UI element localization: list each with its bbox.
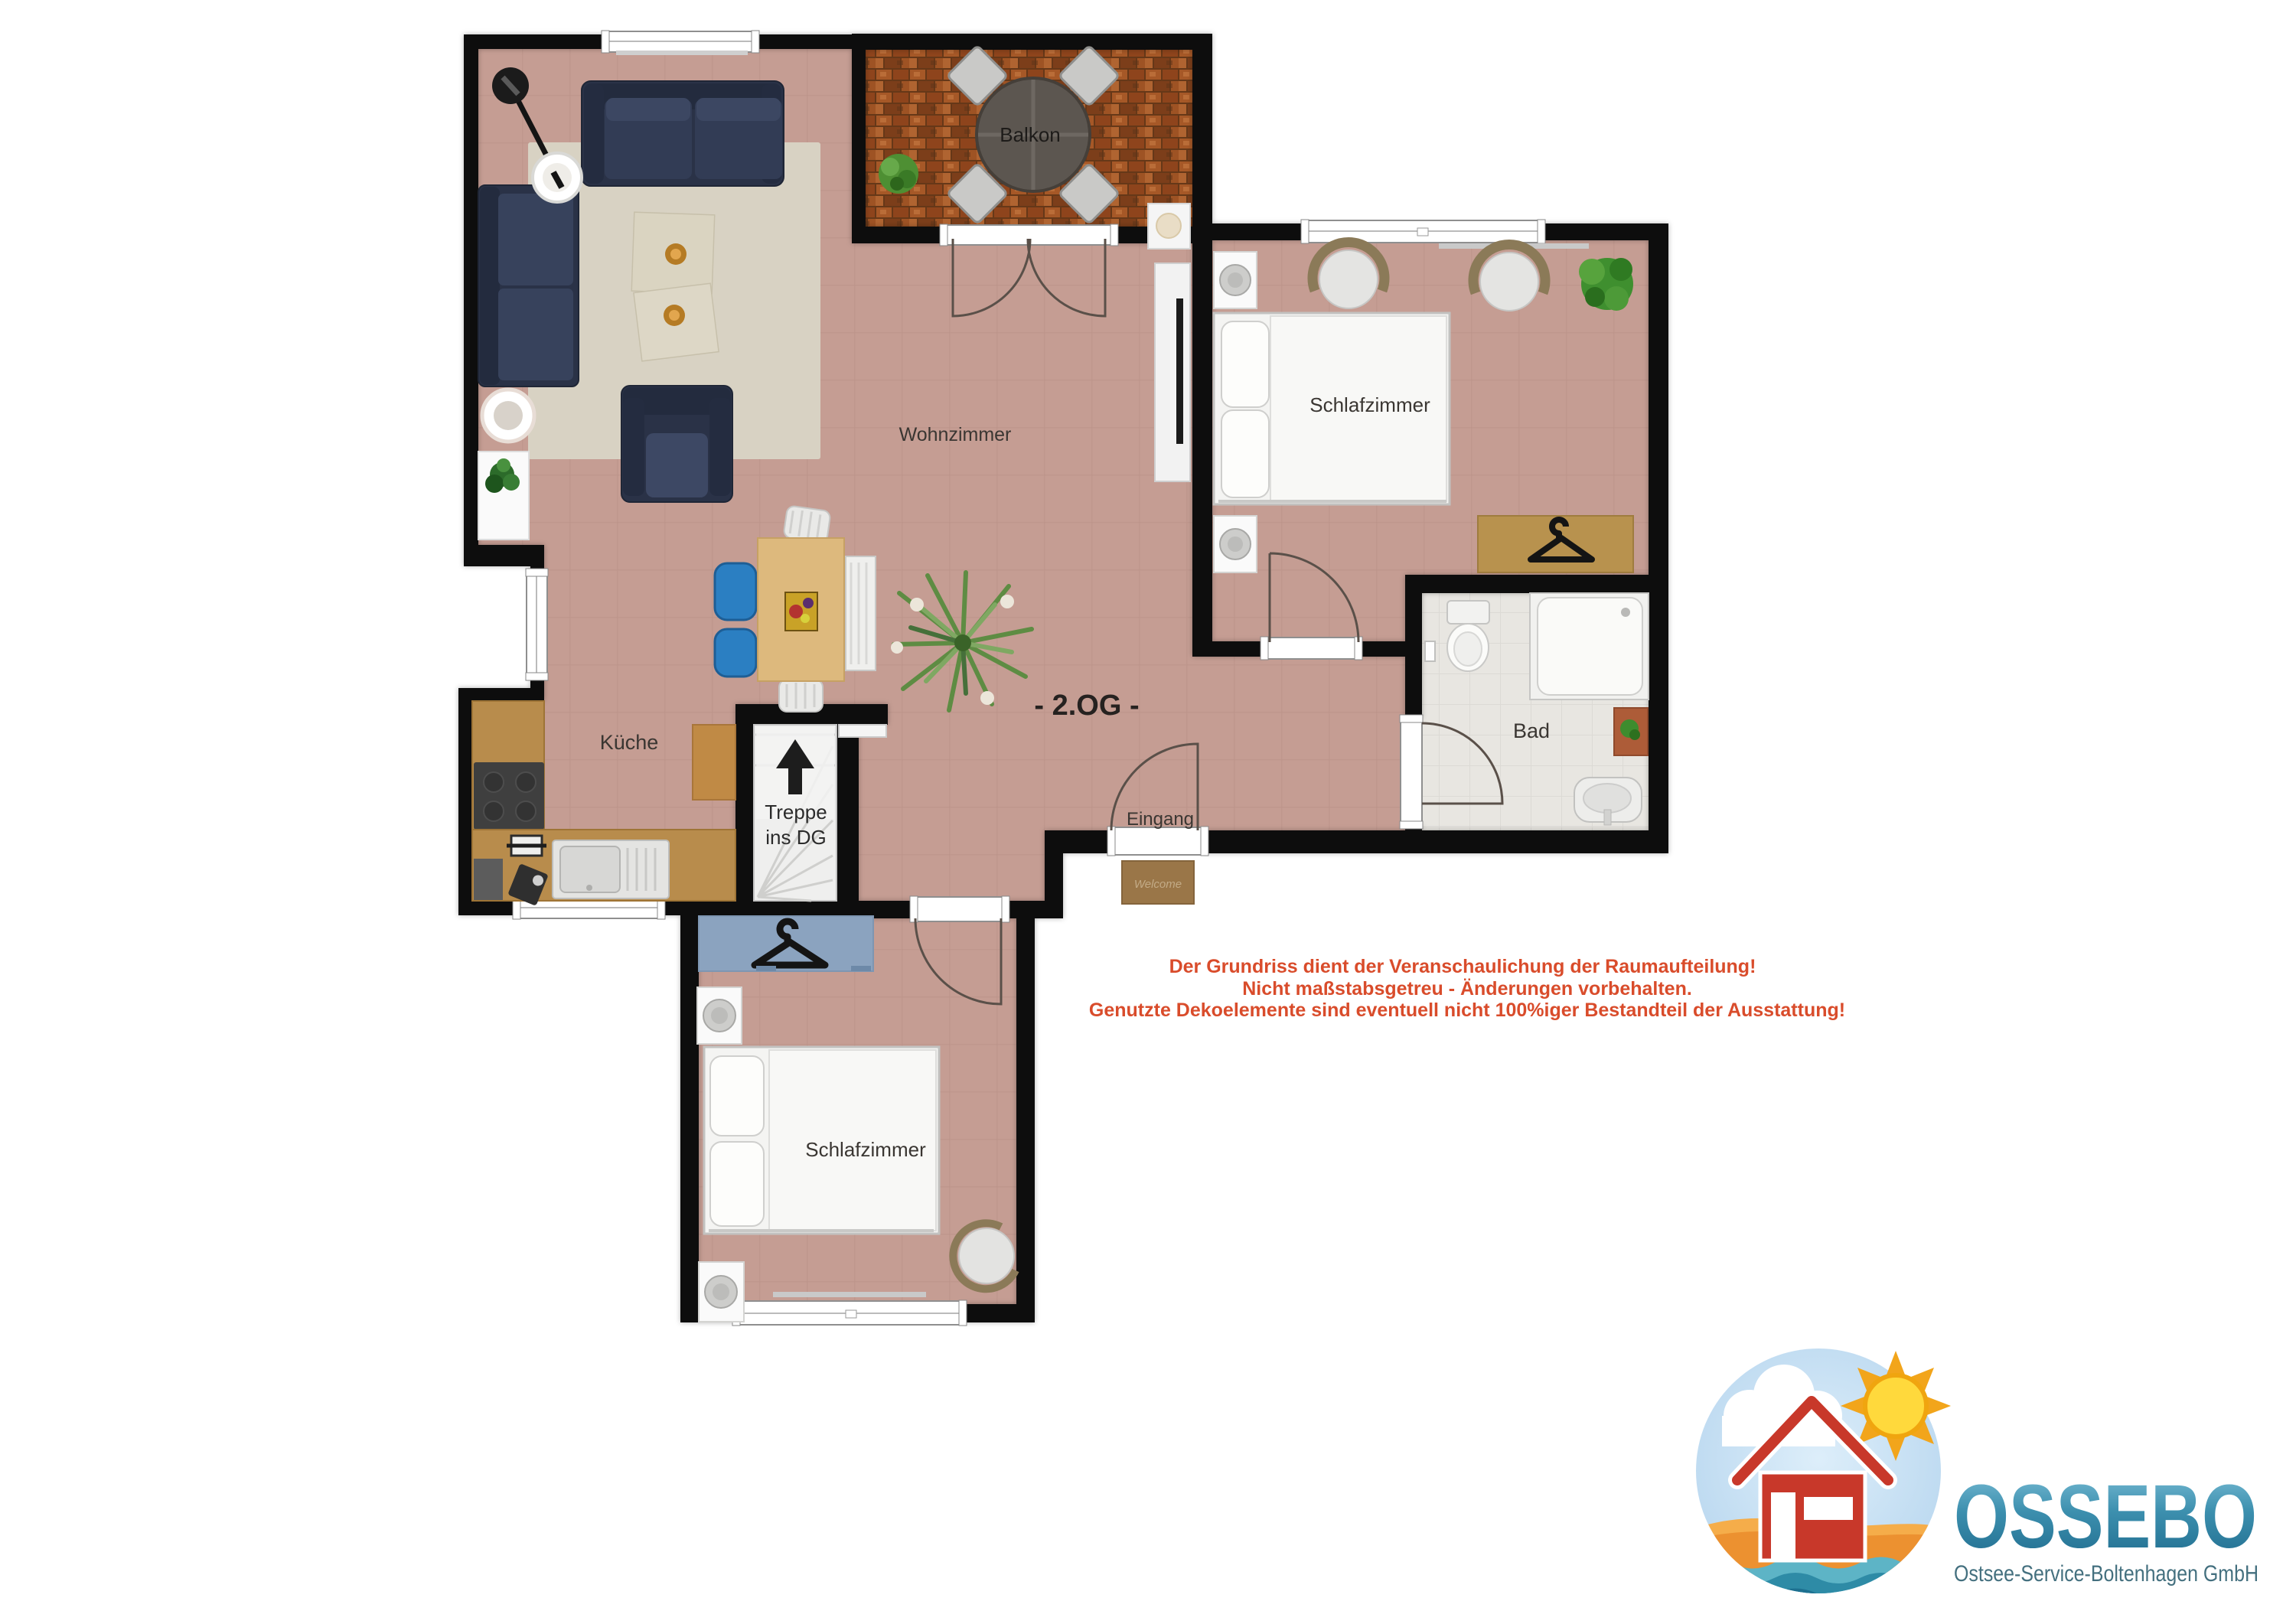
svg-text:ins DG: ins DG [765, 826, 826, 849]
svg-text:Schlafzimmer: Schlafzimmer [1309, 393, 1430, 416]
svg-text:Genutzte Dekoelemente sind eve: Genutzte Dekoelemente sind eventuell nic… [1089, 1000, 1845, 1021]
svg-text:Der Grundriss dient der Verans: Der Grundriss dient der Veranschaulichun… [1169, 956, 1756, 977]
svg-text:Eingang: Eingang [1127, 809, 1194, 830]
svg-text:Treppe: Treppe [765, 801, 827, 823]
svg-text:Wohnzimmer: Wohnzimmer [899, 424, 1012, 445]
svg-text:Balkon: Balkon [1000, 123, 1061, 146]
svg-text:OSSEBO: OSSEBO [1954, 1466, 2257, 1567]
svg-text:Nicht maßstabsgetreu - Änderun: Nicht maßstabsgetreu - Änderungen vorbeh… [1242, 978, 1692, 1000]
svg-text:Schlafzimmer: Schlafzimmer [805, 1138, 926, 1161]
svg-text:Bad: Bad [1513, 719, 1550, 742]
svg-text:Welcome: Welcome [1134, 878, 1182, 891]
svg-text:Küche: Küche [600, 731, 659, 754]
svg-text:Ostsee-Service-Boltenhagen Gmb: Ostsee-Service-Boltenhagen GmbH [1954, 1561, 2258, 1586]
svg-text:- 2.OG -: - 2.OG - [1034, 690, 1139, 722]
